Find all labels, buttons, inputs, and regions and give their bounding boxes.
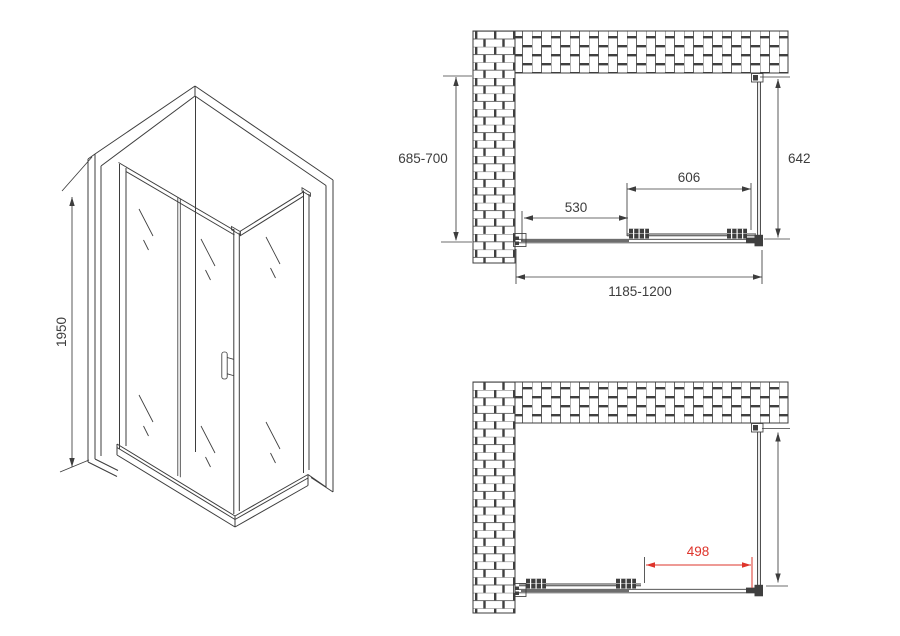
panel-depth-dimension: 642: [760, 77, 811, 239]
plan-view-closed: 685-700 642 606 530 1185-1200: [398, 31, 810, 299]
door-track: [514, 579, 764, 597]
height-dimension-label: 1950: [54, 317, 69, 347]
door-handle: [222, 352, 234, 379]
door-width-dimension: 606: [627, 170, 751, 236]
brick-wall-top: [515, 31, 788, 73]
opening-width-label: 498: [687, 544, 710, 559]
glass-shine-marks: [139, 209, 280, 467]
wall-depth-label: 685-700: [398, 151, 448, 166]
iso-view: 1950: [54, 86, 333, 527]
plan-view-open: 498: [473, 382, 790, 613]
overall-width-label: 1185-1200: [608, 284, 672, 299]
shower-enclosure-frame: [117, 163, 311, 528]
technical-drawing-sheet: 1950: [0, 0, 900, 636]
side-glass-panel: [752, 424, 764, 587]
side-glass-panel: [752, 74, 764, 237]
corner-profile: [746, 585, 763, 597]
corner-profile: [746, 235, 763, 247]
brick-wall-left: [473, 382, 515, 613]
brick-wall-top: [515, 382, 788, 423]
door-width-label: 606: [678, 170, 701, 185]
fixed-width-label: 530: [565, 200, 588, 215]
panel-depth-label: 642: [788, 151, 811, 166]
opening-width-dimension: 498: [645, 544, 753, 588]
door-track: [514, 229, 764, 247]
panel-depth-dimension-open: [762, 429, 790, 587]
wall-corner: [88, 86, 333, 492]
height-dimension: 1950: [54, 157, 92, 472]
overall-width-dimension: 1185-1200: [516, 249, 762, 299]
brick-wall-left: [473, 31, 515, 263]
drawing-canvas: 1950: [0, 0, 900, 636]
fixed-width-dimension: 530: [522, 200, 628, 241]
wall-depth-dimension: 685-700: [398, 76, 472, 242]
